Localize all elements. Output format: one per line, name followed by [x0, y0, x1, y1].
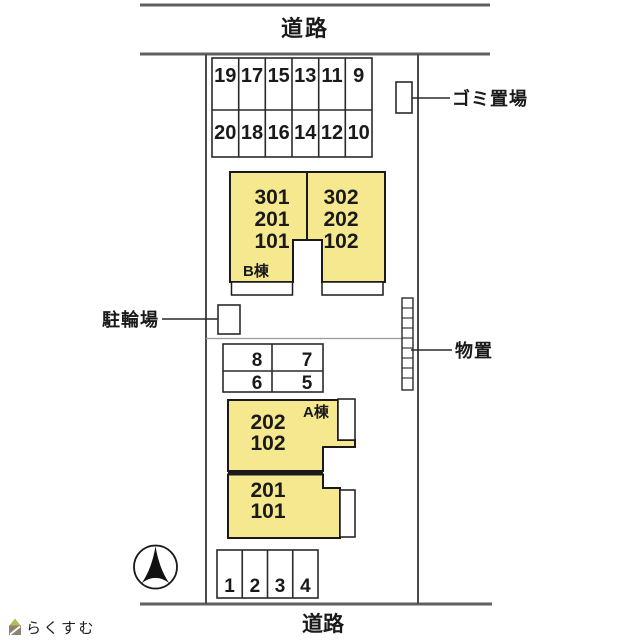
building-b-name: B棟 — [243, 262, 270, 280]
site-plan: 道路 道路 19 17 15 13 11 9 20 18 16 14 12 10… — [0, 0, 640, 640]
stall-number: 16 — [268, 122, 290, 144]
building-a-balcony-lower — [340, 490, 355, 537]
unit-number: 101 — [250, 500, 285, 523]
unit-number: 202 — [323, 208, 358, 231]
unit-number: 301 — [254, 186, 289, 209]
unit-number: 201 — [250, 479, 285, 502]
stall-number: 19 — [214, 65, 236, 87]
stall-number: 15 — [268, 65, 290, 87]
stall-number: 5 — [302, 373, 313, 394]
unit-number: 102 — [323, 230, 358, 253]
road-bottom: 道路 — [140, 604, 492, 636]
stall-number: 6 — [252, 373, 263, 394]
building-a-name: A棟 — [303, 403, 330, 421]
building-a: 202 102 A棟 201 101 — [228, 399, 355, 538]
unit-number: 202 — [250, 411, 285, 434]
road-top-label: 道路 — [281, 16, 329, 41]
stall-number: 10 — [348, 122, 370, 144]
building-a-balcony-upper — [338, 399, 355, 440]
unit-number: 102 — [250, 432, 285, 455]
building-a-upper-body — [228, 400, 355, 471]
unit-number: 101 — [254, 230, 289, 253]
stall-number: 4 — [300, 576, 311, 597]
stall-number: 14 — [294, 122, 317, 144]
building-b-balcony-right — [322, 282, 383, 295]
watermark-logo-roof — [9, 619, 21, 627]
stall-number: 17 — [241, 65, 263, 87]
garbage-box — [396, 82, 412, 113]
stall-number: 1 — [224, 576, 235, 597]
garbage-label: ゴミ置場 — [452, 88, 528, 109]
stall-number: 2 — [250, 576, 261, 597]
site-plan-canvas: 道路 道路 19 17 15 13 11 9 20 18 16 14 12 10… — [0, 0, 640, 640]
stall-number: 8 — [252, 350, 263, 371]
stall-number: 7 — [302, 350, 313, 371]
building-b: 301 201 101 B棟 302 202 102 — [230, 172, 385, 295]
stall-number: 3 — [275, 576, 286, 597]
unit-number: 302 — [323, 186, 358, 209]
parking-grid-mid-numbers: 8 7 6 5 — [252, 350, 313, 394]
watermark-brand-text: らくすむ — [26, 620, 96, 637]
stall-number: 18 — [241, 122, 263, 144]
stall-number: 12 — [321, 122, 343, 144]
stall-number: 20 — [214, 122, 236, 144]
garbage-area: ゴミ置場 — [396, 82, 528, 113]
bicycle-parking: 駐輪場 — [102, 305, 240, 334]
storage-strip — [402, 298, 413, 390]
bicycle-parking-label: 駐輪場 — [102, 309, 159, 330]
unit-number: 201 — [254, 208, 289, 231]
watermark: らくすむ — [9, 619, 96, 638]
stall-number: 13 — [294, 65, 316, 87]
road-bottom-label: 道路 — [302, 612, 345, 636]
building-b-balcony-left — [232, 282, 293, 295]
road-top: 道路 — [140, 5, 490, 54]
bicycle-parking-box — [218, 305, 240, 334]
storage-label: 物置 — [455, 340, 493, 361]
storage-area: 物置 — [402, 298, 493, 390]
stall-number: 11 — [321, 65, 342, 87]
stall-number: 9 — [353, 65, 364, 87]
compass — [134, 546, 177, 589]
